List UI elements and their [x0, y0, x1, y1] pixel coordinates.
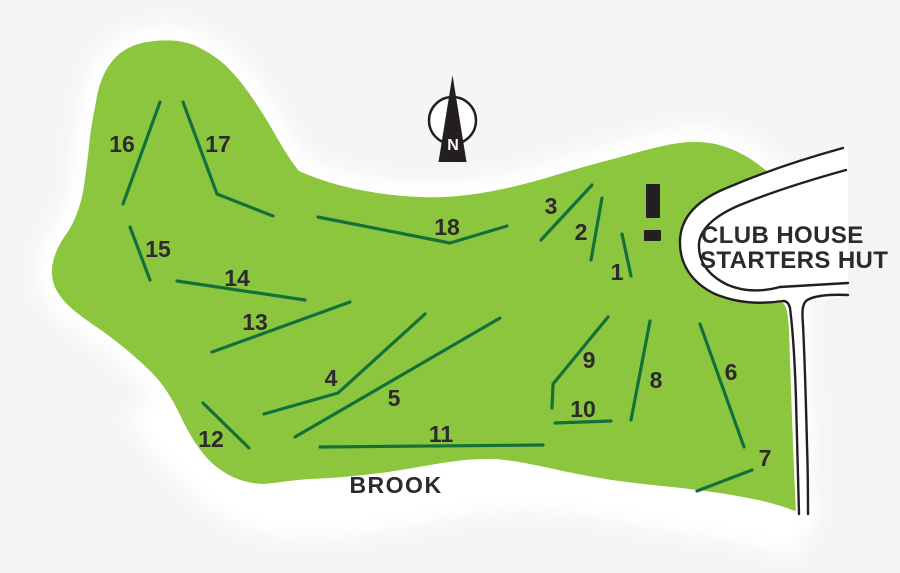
starters-hut-building-marker: [644, 230, 661, 241]
hole-2-number: 2: [575, 219, 588, 245]
hole-3-number: 3: [545, 193, 558, 219]
hole-12-number: 12: [198, 426, 224, 452]
hole-16-number: 16: [109, 131, 135, 157]
hole-18-number: 18: [434, 214, 460, 240]
hole-14-number: 14: [224, 265, 250, 291]
hole-6-number: 6: [725, 359, 738, 385]
brook-label: BROOK: [349, 472, 442, 498]
map-canvas: 123456789101112131415161718 CLUB HOUSE S…: [0, 0, 900, 573]
hole-8-number: 8: [650, 367, 663, 393]
golf-course-map: 123456789101112131415161718 CLUB HOUSE S…: [0, 0, 900, 573]
hole-11-number: 11: [429, 421, 454, 447]
compass-north-label: N: [447, 137, 459, 154]
hole-9-number: 9: [583, 347, 596, 373]
club-house-label: CLUB HOUSE: [701, 222, 864, 249]
hole-17-number: 17: [205, 131, 231, 157]
hole-7-number: 7: [759, 445, 772, 471]
hole-4-number: 4: [325, 365, 338, 391]
hole-5-number: 5: [388, 385, 401, 411]
hole-15-number: 15: [145, 236, 171, 262]
hole-13-number: 13: [242, 309, 268, 335]
starters-hut-label: STARTERS HUT: [700, 247, 888, 274]
hole-10-number: 10: [570, 396, 596, 422]
hole-1-number: 1: [611, 259, 624, 285]
club-house-building-marker: [646, 184, 660, 218]
